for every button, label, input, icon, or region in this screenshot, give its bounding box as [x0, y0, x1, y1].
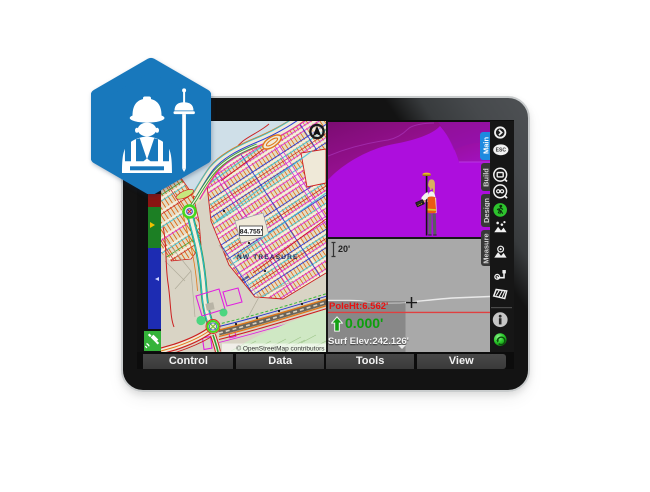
svg-text:20': 20'	[338, 244, 350, 254]
svg-text:ESC: ESC	[496, 148, 507, 154]
svg-text:© OpenStreetMap contributors: © OpenStreetMap contributors	[236, 344, 325, 352]
svg-text:NW TREASURE: NW TREASURE	[237, 254, 299, 261]
svg-text:84.755': 84.755'	[239, 228, 262, 235]
